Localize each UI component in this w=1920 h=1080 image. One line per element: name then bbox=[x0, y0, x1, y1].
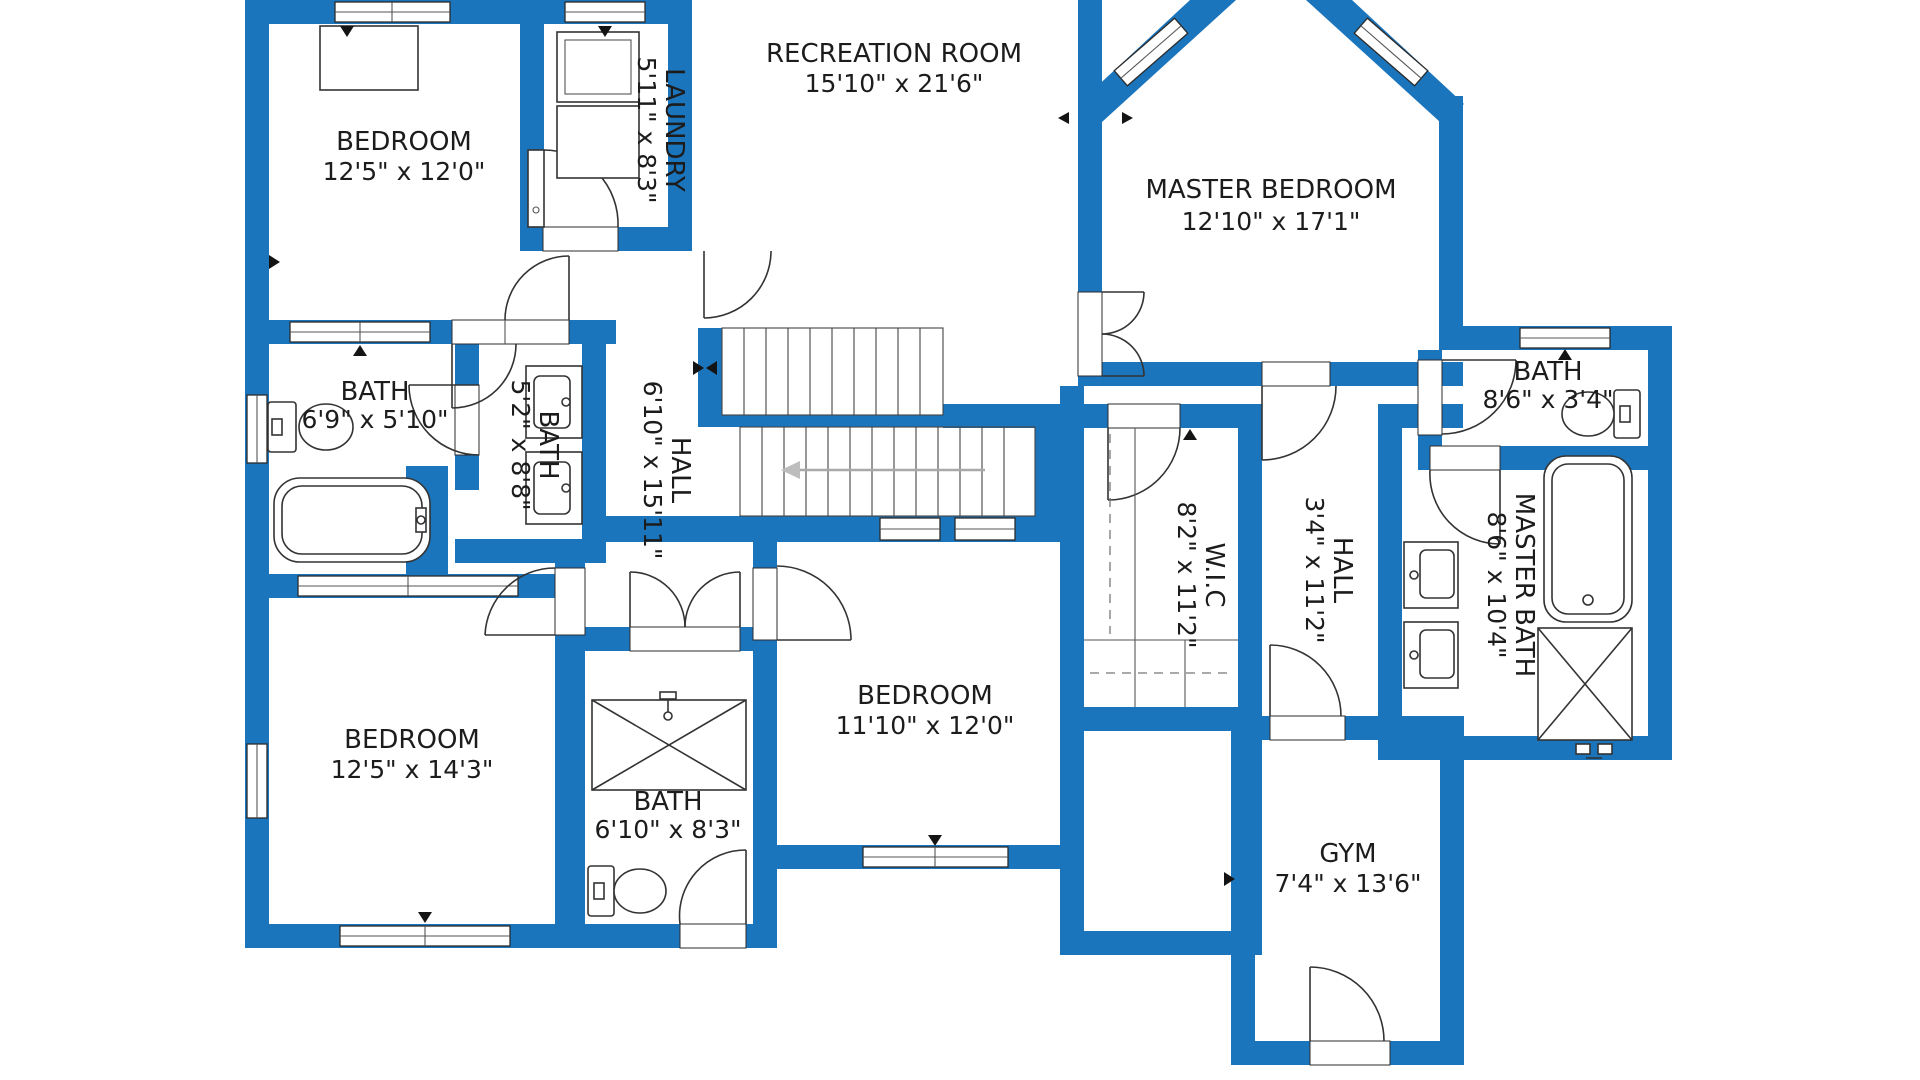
window bbox=[340, 926, 510, 946]
door bbox=[1108, 428, 1180, 500]
room-label-laundry: LAUNDRY 5'11" x 8'3" bbox=[632, 57, 689, 204]
window bbox=[298, 576, 518, 596]
room-label-master-bath: MASTER BATH 8'6" x 10'4" bbox=[1482, 493, 1539, 677]
room-name: LAUNDRY bbox=[659, 68, 689, 192]
room-name: MASTER BEDROOM bbox=[1145, 175, 1396, 205]
room-name: GYM bbox=[1319, 839, 1376, 869]
room-label-bedroom-top-left: BEDROOM 12'5" x 12'0" bbox=[323, 127, 486, 186]
bathtub-icon bbox=[1544, 456, 1632, 622]
door bbox=[1270, 645, 1341, 716]
room-dimensions: 15'10" x 21'6" bbox=[805, 69, 984, 98]
room-name: HALL bbox=[665, 437, 695, 504]
room-label-gym: GYM 7'4" x 13'6" bbox=[1275, 839, 1422, 898]
room-dimensions: 3'4" x 11'2" bbox=[1300, 497, 1329, 644]
door bbox=[704, 251, 771, 318]
floor-plan-canvas: BEDROOM 12'5" x 12'0" LAUNDRY 5'11" x 8'… bbox=[0, 0, 1920, 1080]
room-labels: BEDROOM 12'5" x 12'0" LAUNDRY 5'11" x 8'… bbox=[302, 39, 1614, 898]
room-name: BEDROOM bbox=[857, 681, 993, 711]
room-dimensions: 8'6" x 10'4" bbox=[1482, 512, 1511, 659]
room-label-hall-upper: HALL 3'4" x 11'2" bbox=[1300, 497, 1357, 644]
vanity-sink-icon bbox=[1404, 622, 1458, 688]
room-name: MASTER BATH bbox=[1509, 493, 1539, 677]
window bbox=[565, 2, 645, 22]
door bbox=[505, 256, 569, 320]
shower-icon bbox=[592, 692, 746, 790]
room-label-recreation-room: RECREATION ROOM 15'10" x 21'6" bbox=[766, 39, 1022, 98]
room-name: BATH bbox=[1513, 357, 1582, 387]
room-label-bedroom-bottom-center: BEDROOM 11'10" x 12'0" bbox=[836, 681, 1015, 740]
room-label-wic: W.I.C 8'2" x 11'2" bbox=[1172, 502, 1229, 649]
room-name: W.I.C bbox=[1199, 542, 1229, 607]
room-name: BEDROOM bbox=[336, 127, 472, 157]
room-dimensions: 7'4" x 13'6" bbox=[1275, 869, 1422, 898]
toilet-icon bbox=[588, 866, 666, 916]
window bbox=[247, 744, 267, 818]
bathtub-icon bbox=[274, 478, 430, 562]
window bbox=[290, 322, 430, 342]
door bbox=[777, 566, 851, 640]
window bbox=[863, 847, 1008, 867]
room-dimensions: 11'10" x 12'0" bbox=[836, 711, 1015, 740]
door bbox=[680, 850, 746, 924]
room-dimensions: 6'10" x 8'3" bbox=[595, 815, 742, 844]
room-dimensions: 6'10" x 15'11" bbox=[638, 381, 667, 560]
room-dimensions: 6'9" x 5'10" bbox=[302, 405, 449, 434]
vanity-sink-icon bbox=[1404, 542, 1458, 608]
room-label-bath-bottom: BATH 6'10" x 8'3" bbox=[595, 787, 742, 844]
window bbox=[335, 2, 450, 22]
room-dimensions: 8'6" x 3'4" bbox=[1482, 385, 1613, 414]
room-name: BATH bbox=[533, 410, 563, 479]
room-label-bath-right: BATH 8'6" x 3'4" bbox=[1482, 357, 1613, 414]
room-name: BEDROOM bbox=[344, 725, 480, 755]
room-dimensions: 12'5" x 12'0" bbox=[323, 157, 486, 186]
dryer-icon bbox=[557, 106, 639, 178]
room-name: BATH bbox=[633, 787, 702, 817]
shower-icon bbox=[1538, 628, 1632, 740]
window bbox=[880, 518, 940, 540]
window bbox=[247, 395, 267, 463]
room-dimensions: 12'5" x 14'3" bbox=[331, 755, 494, 784]
room-dimensions: 5'11" x 8'3" bbox=[632, 57, 661, 204]
room-label-master-bedroom: MASTER BEDROOM 12'10" x 17'1" bbox=[1145, 175, 1396, 236]
room-dimensions: 8'2" x 11'2" bbox=[1172, 502, 1201, 649]
room-label-bedroom-bottom-left: BEDROOM 12'5" x 14'3" bbox=[331, 725, 494, 784]
room-dimensions: 5'2" x 8'8" bbox=[506, 379, 535, 510]
door bbox=[1310, 967, 1384, 1041]
room-dimensions: 12'10" x 17'1" bbox=[1182, 207, 1361, 236]
window bbox=[955, 518, 1015, 540]
double-door bbox=[630, 572, 740, 627]
window bbox=[1520, 328, 1610, 348]
door bbox=[1262, 386, 1336, 460]
room-name: BATH bbox=[340, 377, 409, 407]
stair-direction-arrow bbox=[781, 461, 985, 479]
washer-icon bbox=[557, 32, 639, 102]
room-name: RECREATION ROOM bbox=[766, 39, 1022, 69]
room-name: HALL bbox=[1327, 537, 1357, 604]
bedroom-furniture bbox=[320, 26, 418, 90]
